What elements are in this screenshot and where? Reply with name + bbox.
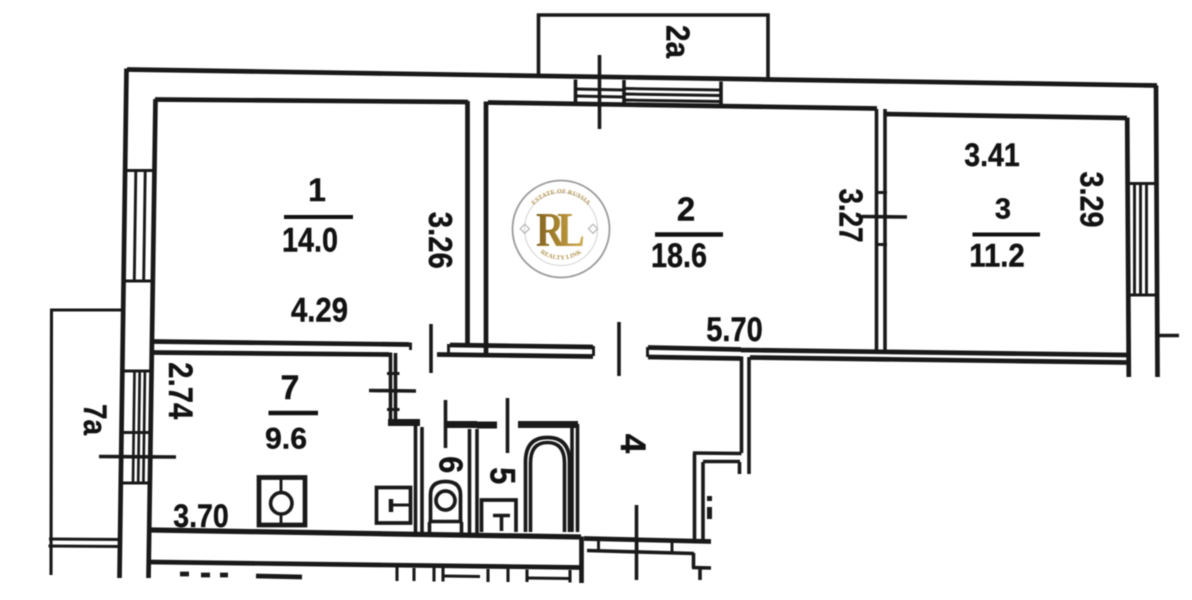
svg-text:3: 3 xyxy=(995,194,1011,226)
svg-text:11.2: 11.2 xyxy=(969,238,1025,274)
svg-text:2: 2 xyxy=(677,191,695,228)
svg-text:3.29: 3.29 xyxy=(1074,172,1110,228)
svg-text:3.70: 3.70 xyxy=(173,498,229,534)
svg-text:6: 6 xyxy=(432,456,469,473)
svg-text:7: 7 xyxy=(281,369,300,407)
svg-text:18.6: 18.6 xyxy=(651,237,707,275)
svg-text:2а: 2а xyxy=(659,25,696,59)
svg-text:2.74: 2.74 xyxy=(161,362,199,419)
svg-text:3.27: 3.27 xyxy=(833,189,870,243)
svg-text:7а: 7а xyxy=(77,404,113,435)
svg-text:4.29: 4.29 xyxy=(291,292,348,330)
svg-text:3.26: 3.26 xyxy=(422,212,459,269)
svg-text:9.6: 9.6 xyxy=(265,423,307,456)
svg-text:L: L xyxy=(557,202,585,257)
svg-text:5: 5 xyxy=(482,467,521,484)
svg-text:5.70: 5.70 xyxy=(706,311,763,349)
svg-text:14.0: 14.0 xyxy=(282,222,338,260)
svg-text:1: 1 xyxy=(308,172,326,208)
svg-text:3.41: 3.41 xyxy=(964,137,1020,173)
svg-text:4: 4 xyxy=(613,434,652,454)
